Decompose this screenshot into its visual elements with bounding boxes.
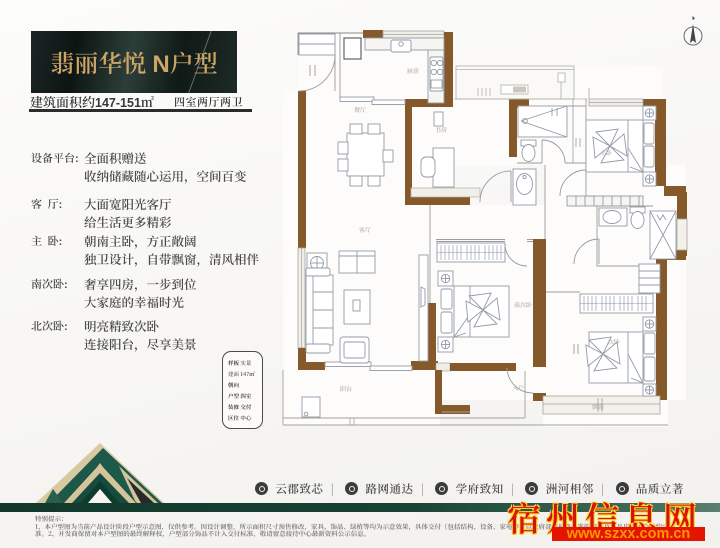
svg-text:主卧: 主卧 [600, 148, 612, 157]
svg-text:餐厅: 餐厅 [354, 105, 366, 114]
svg-text:书房: 书房 [435, 125, 447, 134]
svg-text:厨房: 厨房 [407, 66, 419, 75]
svg-text:南次卧: 南次卧 [514, 300, 532, 309]
svg-text:飘窗: 飘窗 [592, 402, 604, 411]
svg-text:客厅: 客厅 [359, 225, 371, 234]
svg-text:入户: 入户 [512, 383, 524, 392]
svg-text:阳台: 阳台 [340, 384, 352, 393]
svg-text:次卧: 次卧 [608, 337, 620, 346]
